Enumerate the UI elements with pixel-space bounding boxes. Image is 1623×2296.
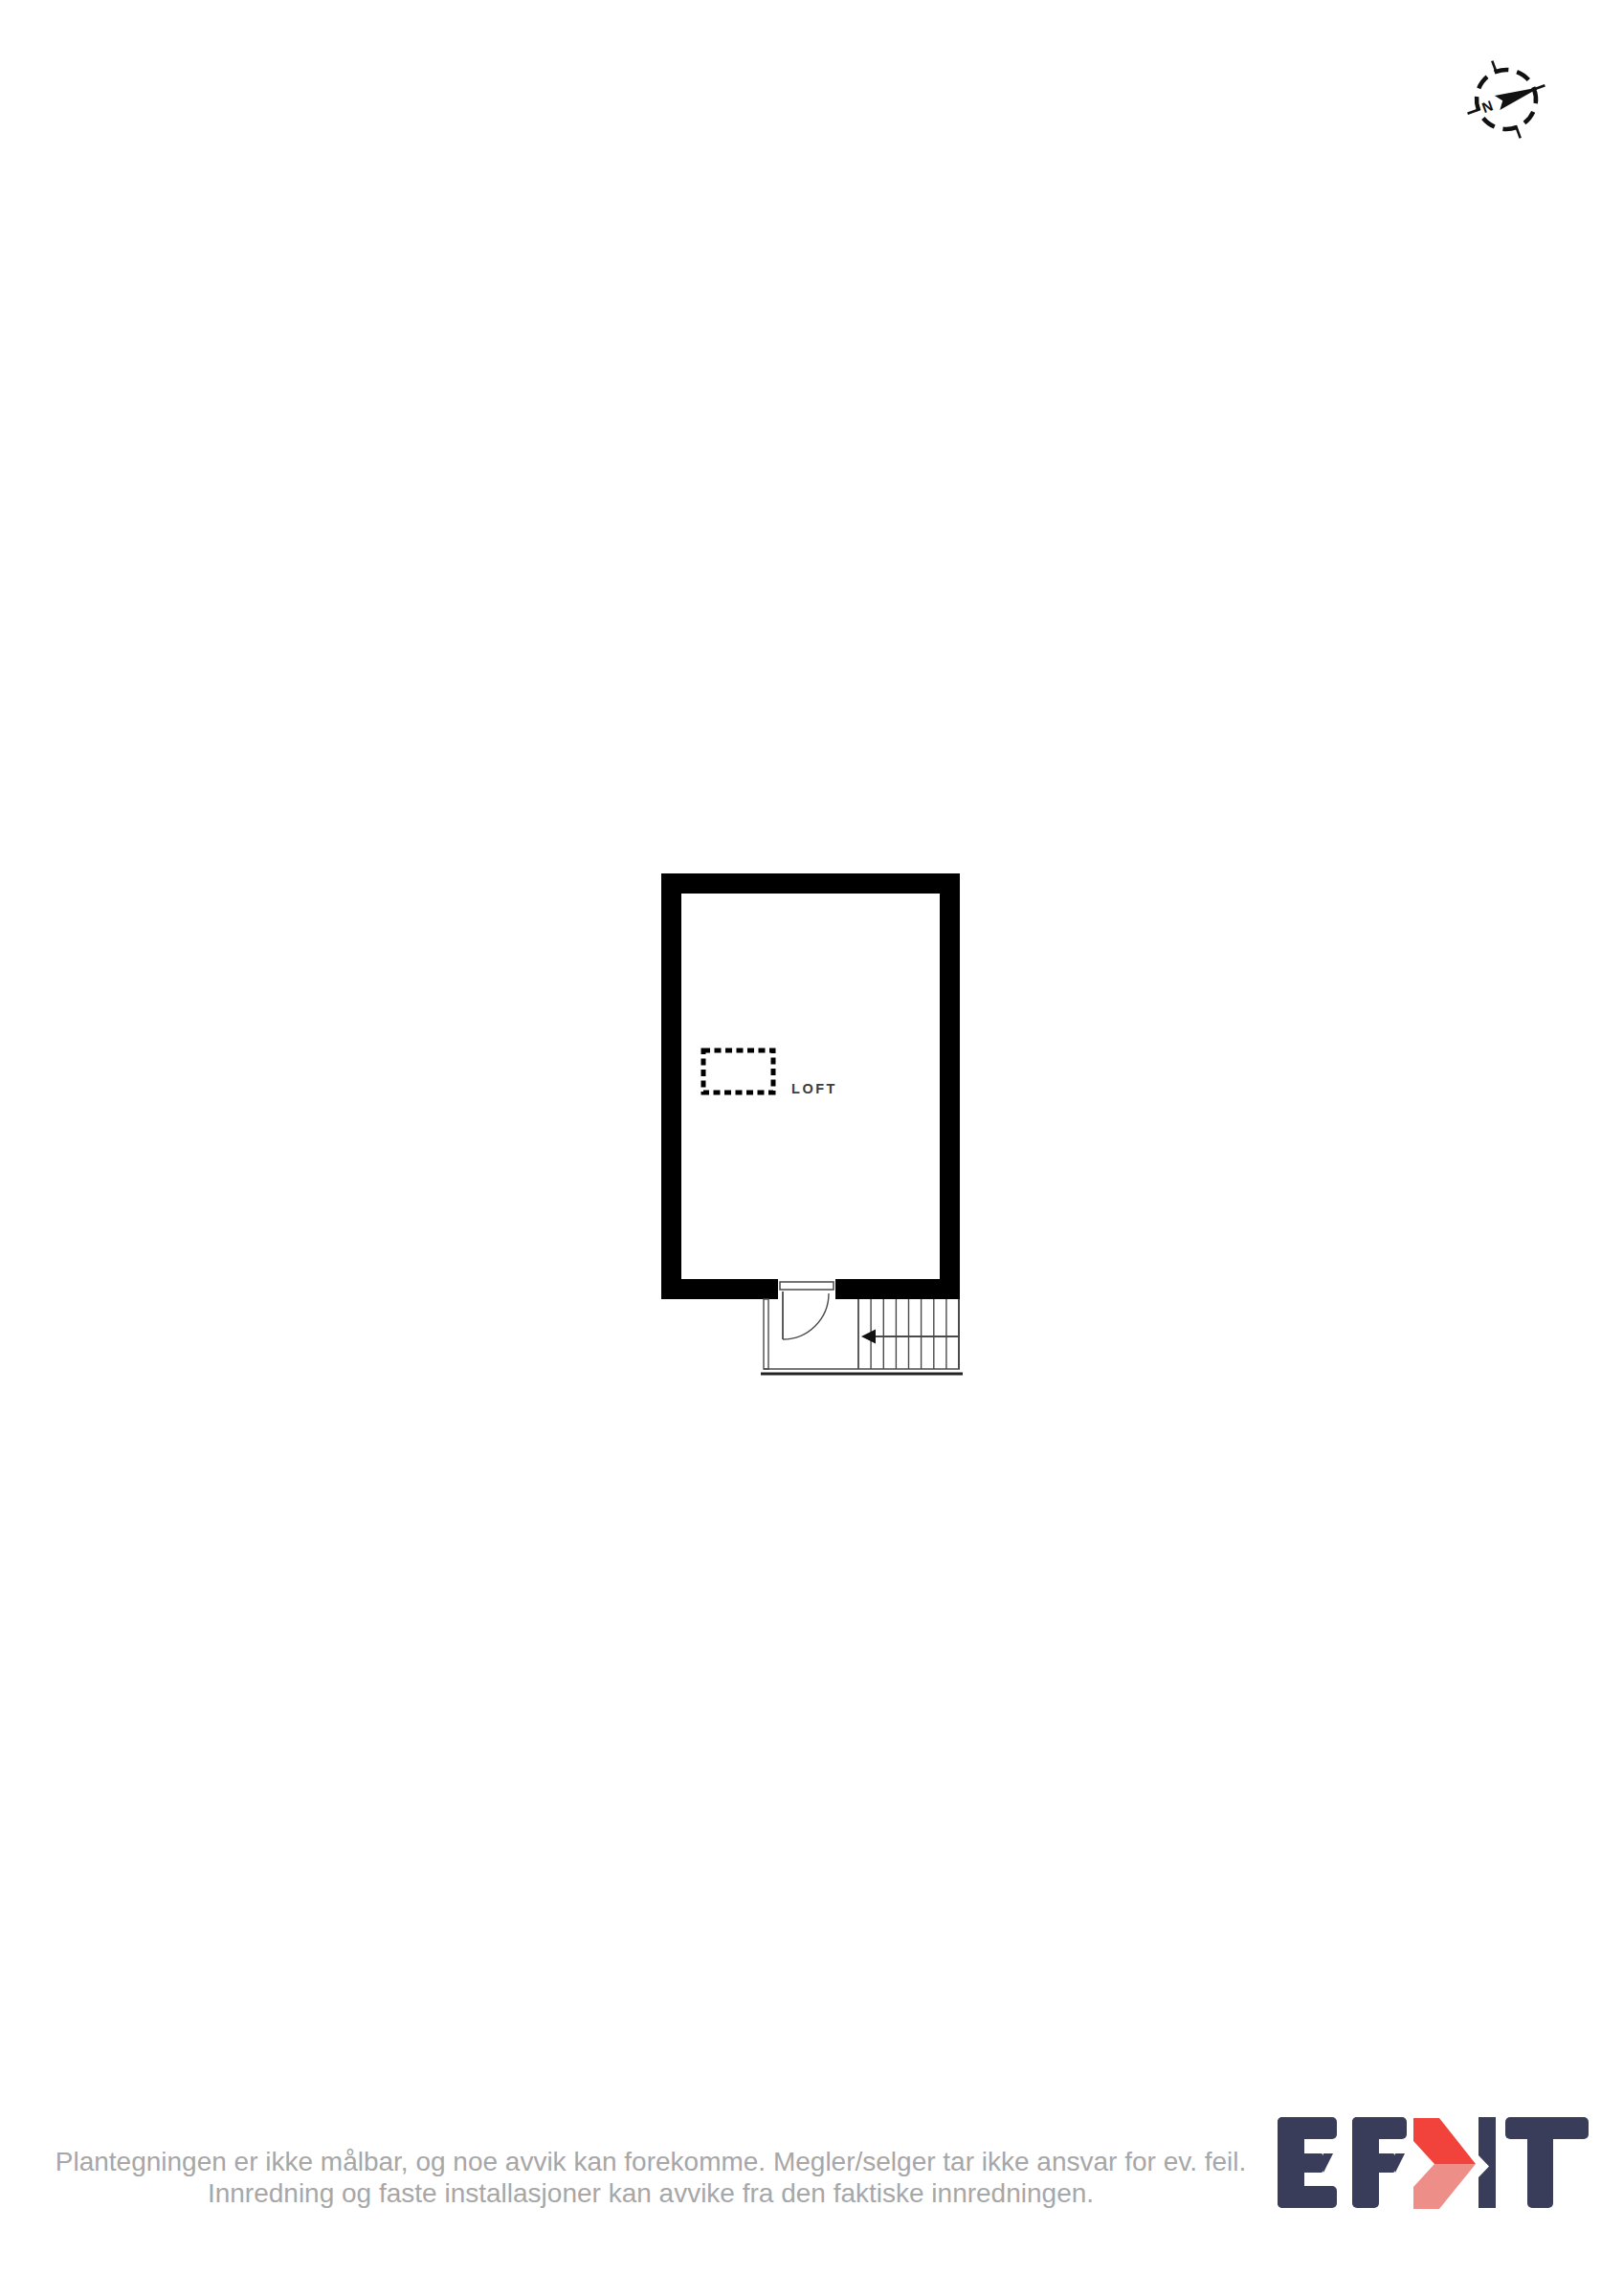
compass-north-label: N bbox=[1479, 97, 1495, 116]
floorplan-page: N LOFT bbox=[0, 0, 1623, 2296]
door-swing-arc bbox=[783, 1293, 829, 1339]
logo-letter-e bbox=[1278, 2117, 1337, 2208]
compass-icon: N bbox=[1455, 46, 1562, 153]
floor-plan: LOFT bbox=[651, 861, 976, 1397]
logo-text: EFKT bbox=[0, 0, 1, 1]
disclaimer-line-1: Plantegningen er ikke målbar, og noe avv… bbox=[19, 2146, 1282, 2177]
room-label: LOFT bbox=[791, 1081, 837, 1096]
efkt-logo bbox=[1273, 2109, 1598, 2219]
logo-letter-f bbox=[1352, 2117, 1407, 2208]
landing-left-wall bbox=[764, 1299, 768, 1369]
logo-letter-t bbox=[1505, 2117, 1589, 2208]
loft-hatch-symbol bbox=[703, 1050, 773, 1093]
door-threshold bbox=[780, 1282, 834, 1290]
logo-letter-k-chevron-icon bbox=[1413, 2117, 1496, 2209]
disclaimer: Plantegningen er ikke målbar, og noe avv… bbox=[19, 2146, 1282, 2209]
disclaimer-line-2: Innredning og faste installasjoner kan a… bbox=[19, 2177, 1282, 2209]
stairs-arrow-icon bbox=[861, 1330, 876, 1344]
